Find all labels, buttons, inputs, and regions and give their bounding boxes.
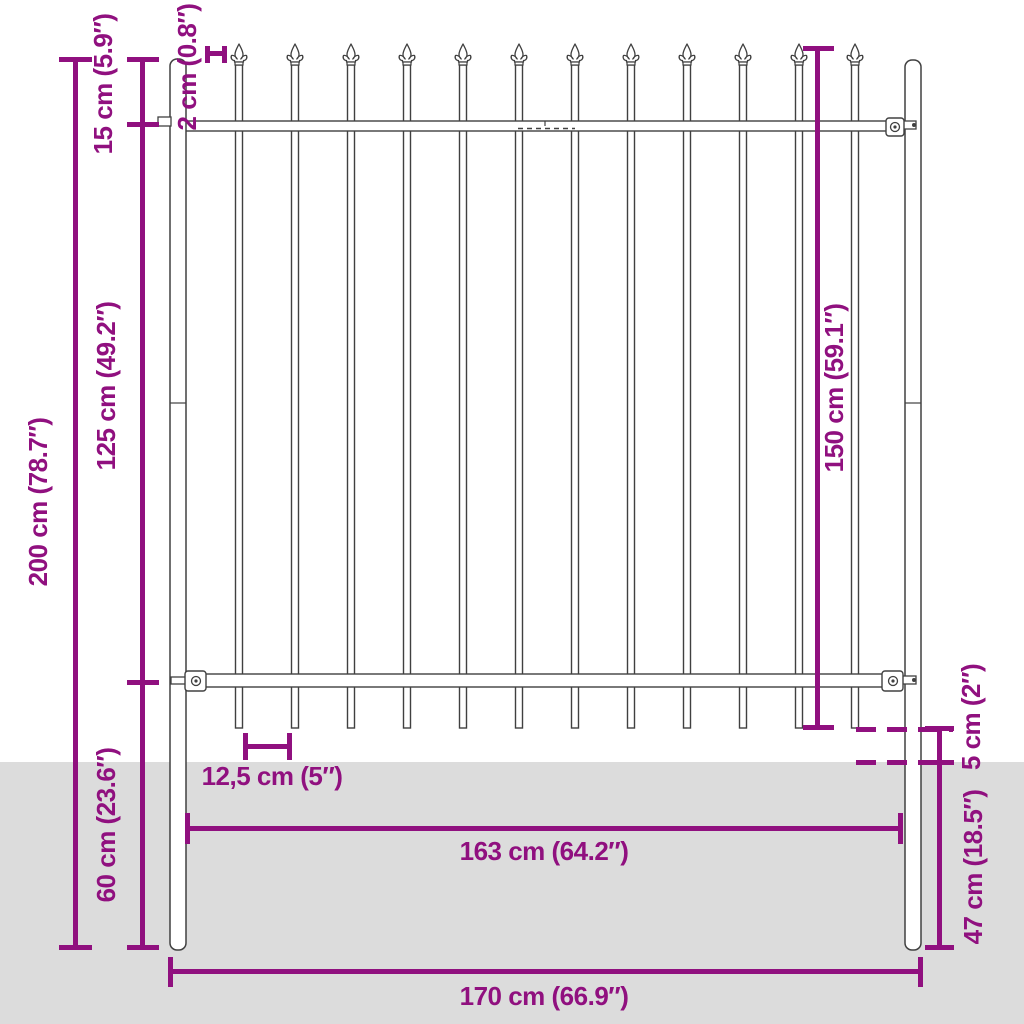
dim-line bbox=[243, 744, 292, 749]
pickets bbox=[231, 44, 863, 728]
picket bbox=[679, 44, 695, 728]
picket bbox=[847, 44, 863, 728]
picket bbox=[623, 44, 639, 728]
dim-line bbox=[187, 826, 903, 831]
dim-cap bbox=[185, 813, 190, 844]
fence-dimension-diagram: 200 cm (78.7″) 15 cm (5.9″) 125 cm (49.2… bbox=[0, 0, 1024, 1024]
picket bbox=[791, 44, 807, 728]
dim-panel-height-label: 150 cm (59.1″) bbox=[821, 304, 847, 473]
dim-overall-width-label: 170 cm (66.9″) bbox=[460, 983, 629, 1009]
top-rail bbox=[183, 121, 888, 131]
dim-rail-span-label: 163 cm (64.2″) bbox=[460, 838, 629, 864]
dim-line bbox=[205, 51, 227, 56]
dim-tick bbox=[127, 680, 159, 685]
dim-cap bbox=[925, 945, 954, 950]
picket bbox=[399, 44, 415, 728]
dim-ground-clearance-label: 5 cm (2″) bbox=[958, 664, 984, 770]
bottom-rail bbox=[202, 674, 886, 687]
dim-cap bbox=[127, 945, 159, 950]
picket bbox=[511, 44, 527, 728]
right-post bbox=[905, 60, 921, 950]
picket bbox=[343, 44, 359, 728]
dim-picket-width-label: 2 cm (0.8″) bbox=[174, 4, 200, 131]
picket bbox=[287, 44, 303, 728]
dim-picket-spacing-label: 12,5 cm (5″) bbox=[202, 763, 343, 789]
dim-cap bbox=[127, 57, 159, 62]
dim-line bbox=[140, 57, 145, 950]
dim-overall-height-label: 200 cm (78.7″) bbox=[25, 418, 51, 587]
dim-top-offset-label: 15 cm (5.9″) bbox=[90, 14, 116, 155]
picket bbox=[231, 44, 247, 728]
dim-cap bbox=[59, 945, 92, 950]
dim-line bbox=[170, 969, 921, 974]
fence-panel-drawing bbox=[0, 0, 1024, 1024]
dim-cap bbox=[925, 760, 954, 765]
dim-cap bbox=[803, 46, 834, 51]
dim-cap bbox=[898, 813, 903, 844]
dim-cap bbox=[803, 725, 834, 730]
dim-cap bbox=[168, 957, 173, 987]
picket bbox=[455, 44, 471, 728]
dim-below-ground-label: 60 cm (23.6″) bbox=[93, 748, 119, 903]
dim-cap bbox=[918, 957, 923, 987]
dim-tick bbox=[127, 122, 159, 127]
top-left-bracket bbox=[158, 117, 171, 126]
picket bbox=[735, 44, 751, 728]
dim-mid-section-label: 125 cm (49.2″) bbox=[93, 302, 119, 471]
dim-line bbox=[73, 57, 78, 950]
left-post bbox=[170, 59, 186, 950]
picket bbox=[567, 44, 583, 728]
dim-post-in-ground-label: 47 cm (18.5″) bbox=[960, 790, 986, 945]
dim-cap bbox=[925, 726, 954, 731]
